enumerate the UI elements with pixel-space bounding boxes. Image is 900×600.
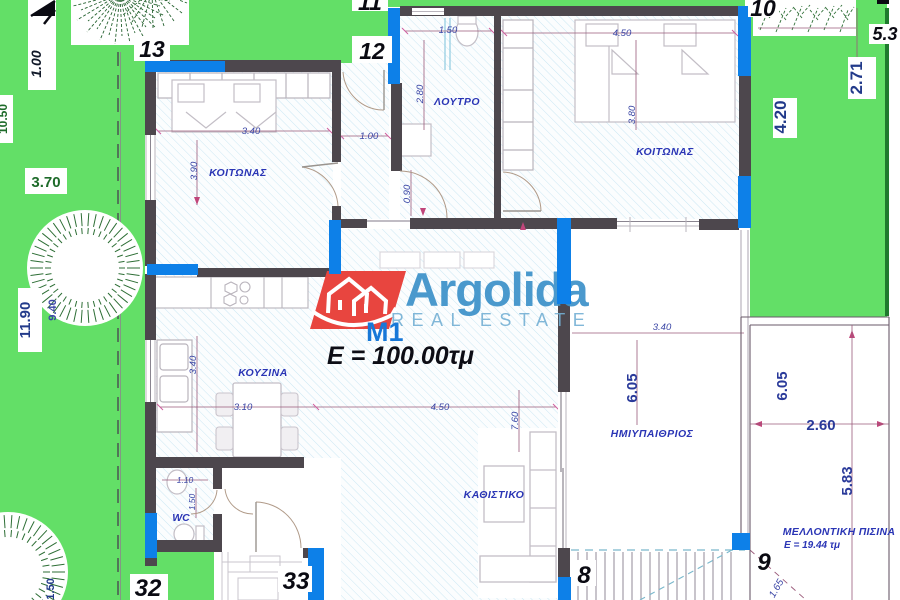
svg-text:3.80: 3.80 xyxy=(627,105,638,124)
svg-text:ΗΜΙΥΠΑΙΘΡΙΟΣ: ΗΜΙΥΠΑΙΘΡΙΟΣ xyxy=(611,428,694,440)
svg-text:E = 19.44 τμ: E = 19.44 τμ xyxy=(784,540,840,551)
svg-text:33: 33 xyxy=(283,568,310,595)
svg-text:1.10: 1.10 xyxy=(177,475,194,485)
svg-text:10.50: 10.50 xyxy=(0,104,10,134)
svg-text:7.60: 7.60 xyxy=(510,411,521,430)
svg-text:0.90: 0.90 xyxy=(402,184,413,203)
svg-text:12: 12 xyxy=(359,38,385,64)
svg-text:1.00: 1.00 xyxy=(28,50,44,77)
svg-text:2.80: 2.80 xyxy=(415,84,426,104)
svg-text:6.05: 6.05 xyxy=(624,373,641,402)
svg-text:ΚΟΙΤΩΝΑΣ: ΚΟΙΤΩΝΑΣ xyxy=(209,167,267,179)
svg-text:ΚΟΥΖΙΝΑ: ΚΟΥΖΙΝΑ xyxy=(238,367,288,379)
svg-text:4.50: 4.50 xyxy=(431,402,450,413)
svg-text:1.00: 1.00 xyxy=(360,131,379,142)
svg-text:13: 13 xyxy=(139,36,165,62)
svg-text:E = 100.00τμ: E = 100.00τμ xyxy=(327,342,474,370)
svg-text:3.40: 3.40 xyxy=(653,322,672,333)
svg-text:ΚΟΙΤΩΝΑΣ: ΚΟΙΤΩΝΑΣ xyxy=(636,146,694,158)
svg-text:11: 11 xyxy=(358,0,382,15)
svg-text:8: 8 xyxy=(577,562,591,589)
svg-text:1.50: 1.50 xyxy=(45,578,57,599)
svg-text:3.40: 3.40 xyxy=(188,355,199,374)
svg-text:3.90: 3.90 xyxy=(189,161,200,180)
svg-text:ΚΑΘΙΣΤΙΚΟ: ΚΑΘΙΣΤΙΚΟ xyxy=(464,489,525,501)
svg-text:9.40: 9.40 xyxy=(47,299,59,320)
svg-text:5.3: 5.3 xyxy=(872,24,897,44)
svg-text:9: 9 xyxy=(757,549,771,576)
svg-text:10: 10 xyxy=(750,0,776,21)
svg-text:ΛΟΥΤΡΟ: ΛΟΥΤΡΟ xyxy=(433,96,480,108)
svg-text:32: 32 xyxy=(135,575,162,600)
svg-text:2.71: 2.71 xyxy=(847,61,866,94)
svg-text:WC: WC xyxy=(172,512,190,524)
svg-text:REAL ESTATE: REAL ESTATE xyxy=(391,310,592,330)
svg-text:6.05: 6.05 xyxy=(774,371,791,400)
svg-text:1.50: 1.50 xyxy=(439,25,458,36)
svg-text:11.90: 11.90 xyxy=(17,302,34,339)
svg-text:3.10: 3.10 xyxy=(234,402,253,413)
svg-text:1.50: 1.50 xyxy=(187,493,197,510)
svg-text:ΜΕΛΛΟΝΤΙΚΗ ΠΙΣΙΝΑ: ΜΕΛΛΟΝΤΙΚΗ ΠΙΣΙΝΑ xyxy=(783,526,896,538)
svg-text:4.20: 4.20 xyxy=(771,100,790,133)
svg-text:3.70: 3.70 xyxy=(31,174,60,191)
svg-text:3.40: 3.40 xyxy=(242,126,261,137)
svg-text:4.50: 4.50 xyxy=(613,28,632,39)
svg-text:2.60: 2.60 xyxy=(806,417,835,434)
svg-text:5.83: 5.83 xyxy=(839,466,856,495)
